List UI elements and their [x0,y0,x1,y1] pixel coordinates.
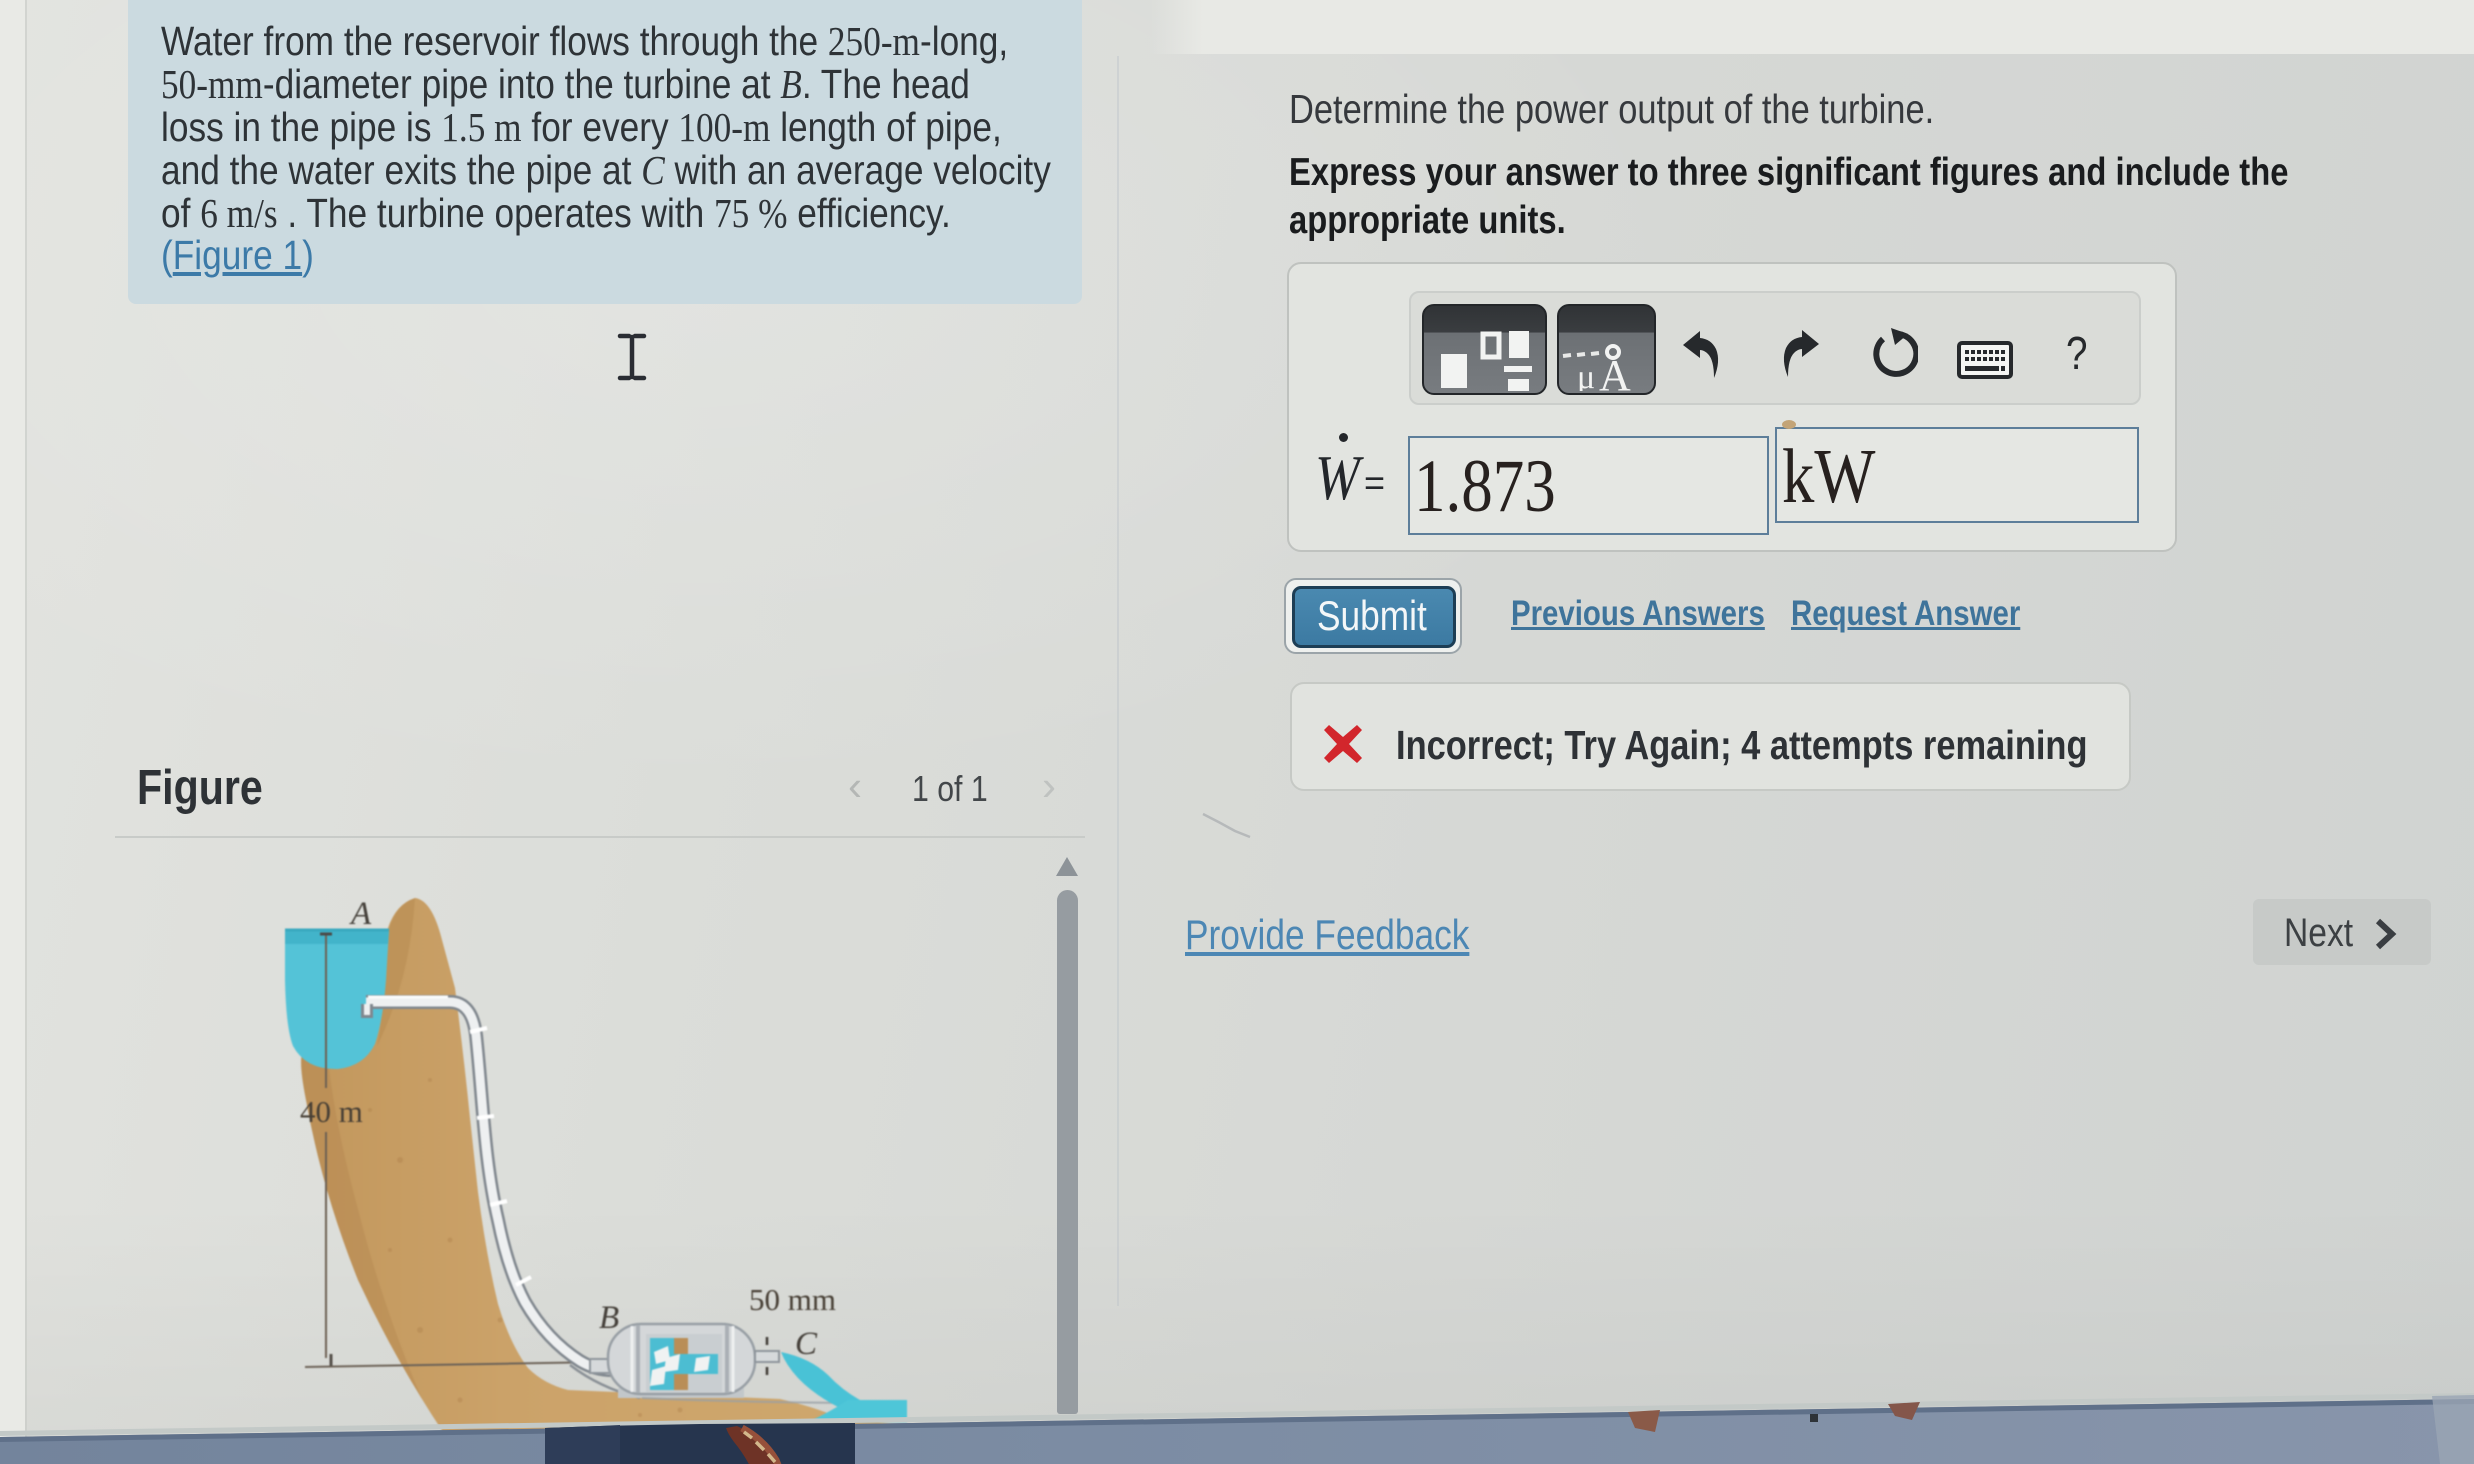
svg-text:40 m: 40 m [300,1094,363,1129]
svg-text:A: A [1599,351,1631,391]
svg-text:B: B [599,1300,619,1336]
svg-text:A: A [349,896,372,932]
svg-text:μ: μ [1577,359,1595,391]
svg-text:C: C [795,1326,818,1362]
svg-text:50 mm: 50 mm [749,1282,836,1317]
